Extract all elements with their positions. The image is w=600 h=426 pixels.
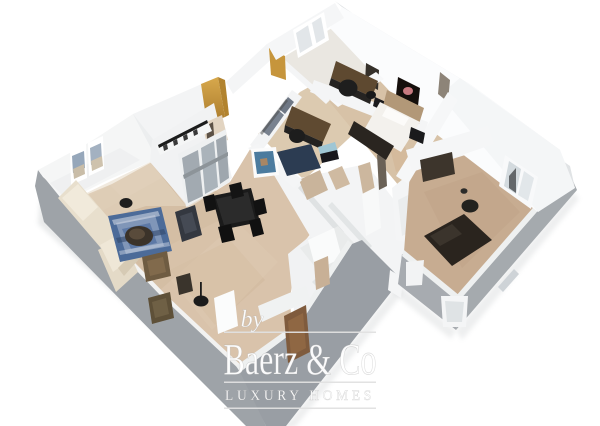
svg-text:LUXURY HOMES: LUXURY HOMES	[225, 388, 375, 404]
svg-text:Baerz & Co: Baerz & Co	[224, 335, 377, 384]
svg-text:by: by	[241, 307, 264, 333]
